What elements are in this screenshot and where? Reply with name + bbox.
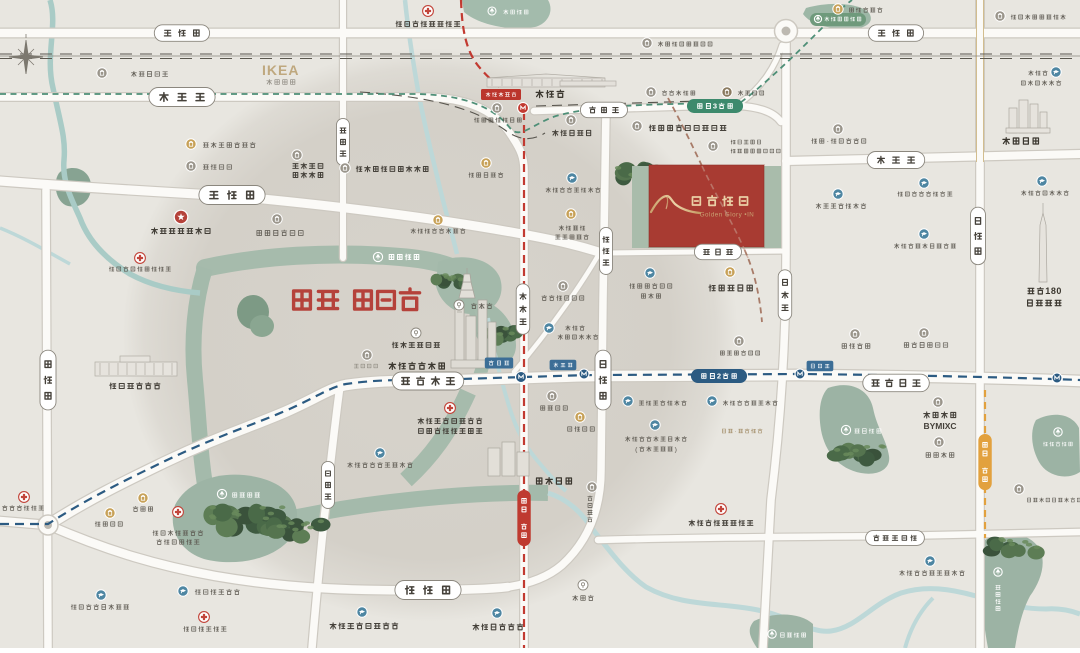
svg-text:0: 0 — [1056, 286, 1061, 296]
svg-text:2: 2 — [717, 372, 721, 381]
svg-text:·: · — [735, 428, 737, 435]
svg-text:BYMIXC: BYMIXC — [923, 421, 956, 431]
svg-text:): ) — [675, 446, 677, 453]
svg-text:8: 8 — [1051, 286, 1056, 296]
svg-text:1: 1 — [1045, 286, 1050, 296]
svg-text:IKEA: IKEA — [262, 62, 299, 78]
svg-text:3: 3 — [713, 102, 717, 111]
svg-text:·: · — [827, 137, 829, 146]
